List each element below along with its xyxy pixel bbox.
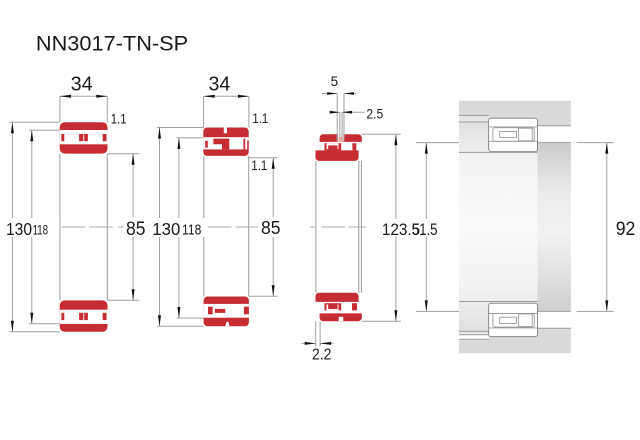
svg-text:51.5: 51.5: [412, 220, 438, 239]
svg-text:1.1: 1.1: [111, 111, 127, 127]
svg-text:130: 130: [6, 219, 32, 239]
svg-text:NN3017-TN-SP: NN3017-TN-SP: [36, 31, 188, 55]
svg-text:85: 85: [261, 217, 281, 238]
svg-text:2.2: 2.2: [312, 347, 331, 364]
svg-text:5: 5: [331, 74, 339, 89]
svg-text:34: 34: [209, 73, 231, 96]
svg-text:92: 92: [616, 218, 636, 240]
svg-text:85: 85: [126, 218, 146, 240]
svg-text:34: 34: [71, 73, 93, 96]
svg-text:130: 130: [152, 219, 180, 239]
svg-text:1.1: 1.1: [251, 157, 267, 173]
svg-text:118: 118: [182, 222, 201, 239]
svg-text:118: 118: [33, 222, 49, 238]
svg-text:1.1: 1.1: [252, 110, 268, 126]
svg-text:2.5: 2.5: [366, 106, 383, 121]
